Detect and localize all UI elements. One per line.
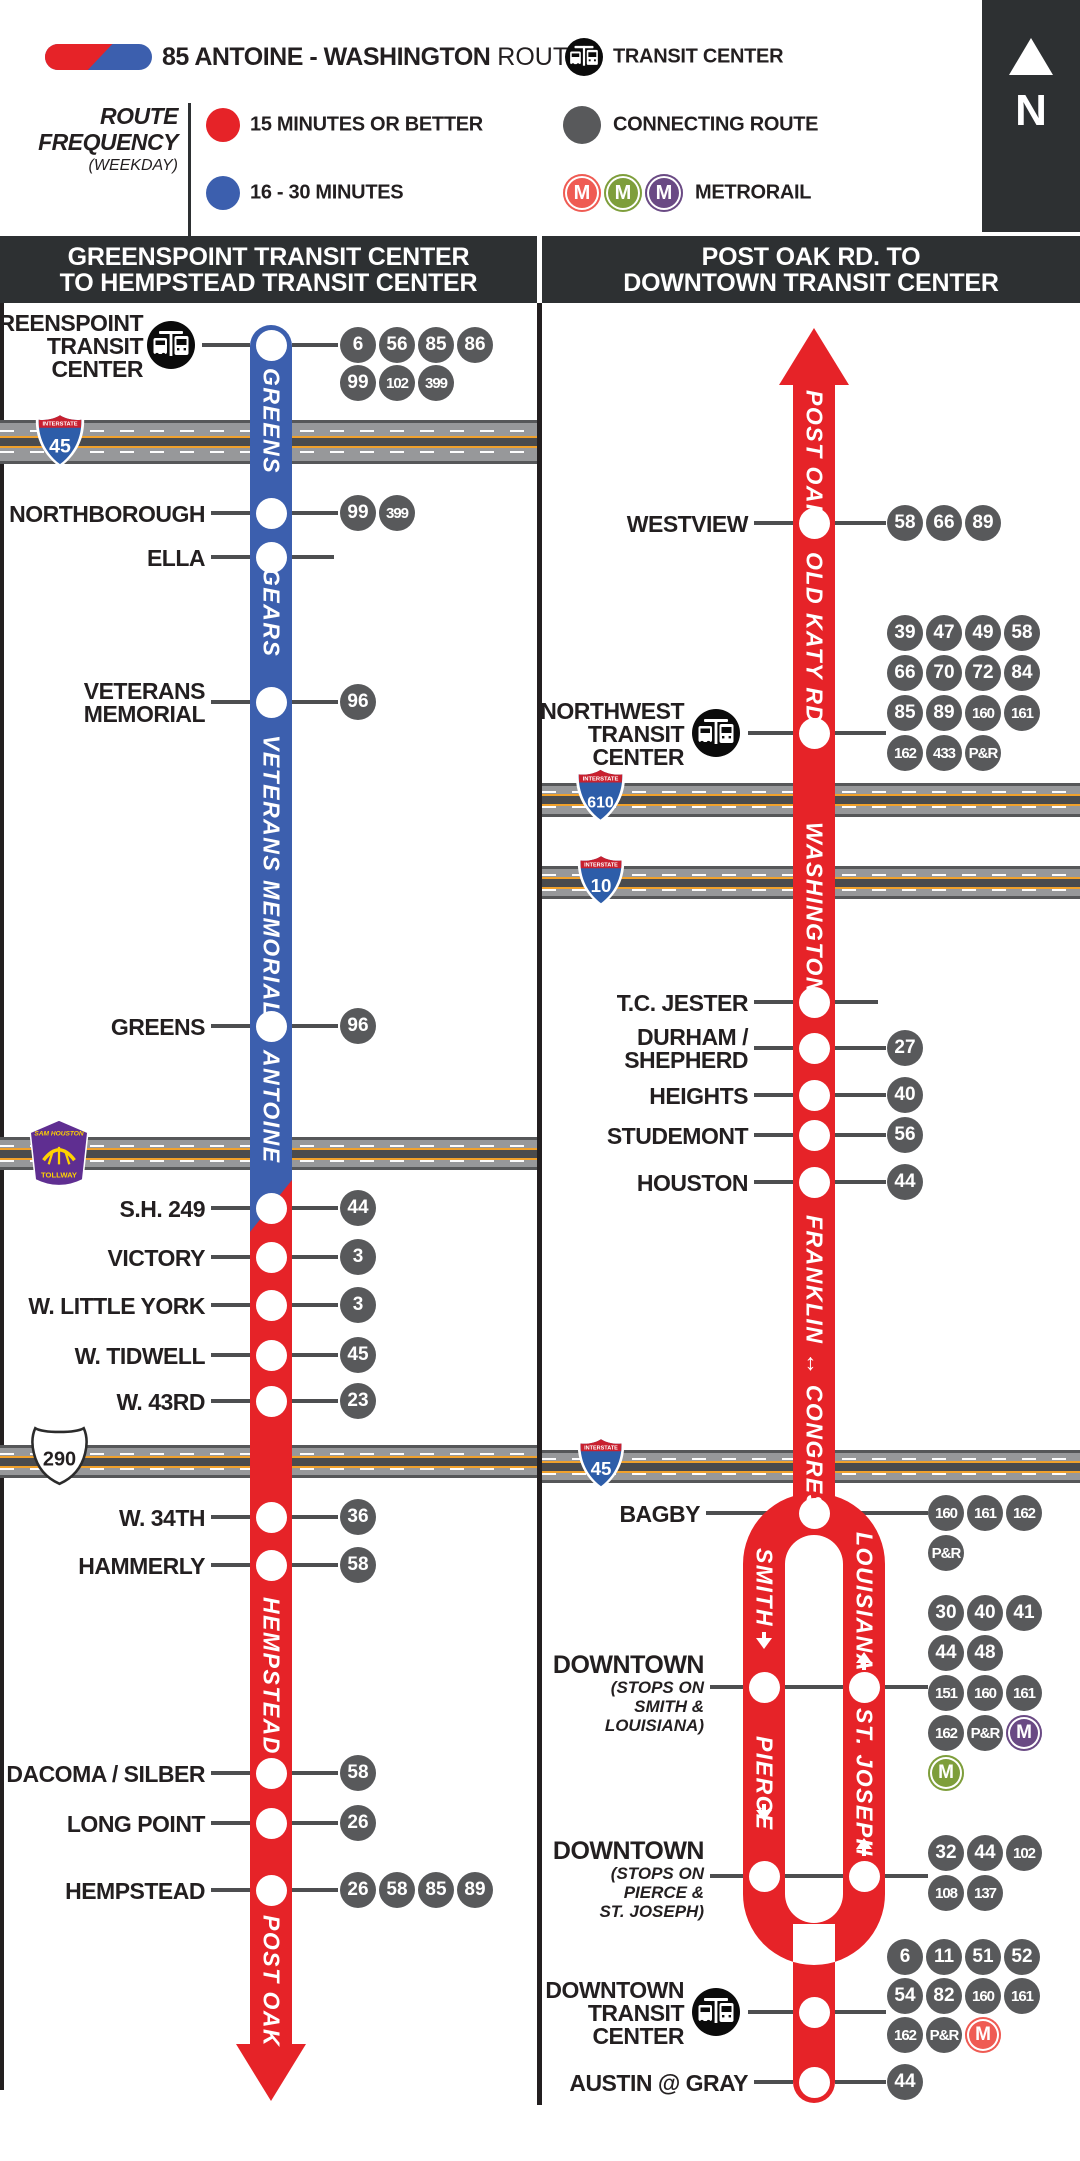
route-badge: 433	[926, 735, 962, 771]
stop-label-line: TRANSIT	[424, 723, 684, 746]
metrorail-badge: M	[965, 2017, 1001, 2053]
stop-label-line: SHEPHERD	[488, 1049, 748, 1072]
stop-label: VICTORY	[0, 1247, 205, 1270]
route-badge: 399	[379, 495, 415, 531]
connector-line	[292, 1399, 338, 1403]
connector-line	[211, 555, 250, 559]
connector-line	[292, 1821, 338, 1825]
stop-label-line: TRANSIT	[424, 2002, 684, 2025]
highway-shield: INTERSTATE 45	[576, 1433, 626, 1493]
route-badge: 137	[967, 1875, 1003, 1911]
street-label: ST. JOSEPH	[843, 1708, 885, 1830]
route-badge: 6	[340, 327, 376, 363]
route-badge: 58	[1004, 615, 1040, 651]
route-badge: 44	[967, 1835, 1003, 1871]
stop-label-line: CENTER	[0, 358, 143, 381]
stop-marker	[799, 1033, 830, 1064]
connector-line	[748, 731, 793, 735]
stop-sub-label: LOUISIANA)	[444, 1716, 704, 1735]
stop-label: AUSTIN @ GRAY	[488, 2072, 748, 2095]
route-badge: 162	[887, 735, 923, 771]
stop-label-line: VICTORY	[0, 1247, 205, 1270]
route-badge: 85	[887, 695, 923, 731]
route-badge: 108	[928, 1875, 964, 1911]
connector-line	[211, 1399, 250, 1403]
svg-text:45: 45	[591, 1458, 612, 1479]
route-badge: 161	[967, 1495, 1003, 1531]
stop-label-line: W. LITTLE YORK	[0, 1295, 205, 1318]
stop-label-line: WESTVIEW	[488, 513, 748, 536]
transit-center-bus-glyph	[692, 709, 740, 757]
stop-label-line: TRANSIT	[0, 335, 143, 358]
stop-label-line: GREENSPOINT	[0, 312, 143, 335]
route-badge: 102	[1006, 1835, 1042, 1871]
route-badge: 3	[340, 1239, 376, 1275]
stop-label: WESTVIEW	[488, 513, 748, 536]
highway-shield: INTERSTATE 10	[576, 850, 626, 910]
route-badge: 58	[379, 1872, 415, 1908]
svg-text:SAM HOUSTON: SAM HOUSTON	[34, 1130, 83, 1137]
map-layer: INTERSTATE 45 SAM HOUSTON TOLLWAY 290GRE…	[0, 0, 1080, 2161]
street-label: POST OAK	[793, 390, 835, 505]
stop-label-line: CENTER	[424, 2025, 684, 2048]
route-badge: 161	[1004, 695, 1040, 731]
route-badge: 26	[340, 1805, 376, 1841]
stop-marker	[799, 508, 830, 539]
route-badge: 99	[340, 365, 376, 401]
stop-marker	[799, 1997, 830, 2028]
stop-marker	[256, 1340, 287, 1371]
direction-arrow-stem	[862, 1663, 866, 1670]
stop-marker	[256, 1011, 287, 1042]
route-badge: 44	[887, 1164, 923, 1200]
route-badge: 27	[887, 1030, 923, 1066]
route-badge: 40	[967, 1595, 1003, 1631]
stop-label: DOWNTOWN(STOPS ONPIERCE &ST. JOSEPH)	[444, 1838, 704, 1921]
direction-arrow-down	[756, 1638, 772, 1649]
route-badge: 151	[928, 1675, 964, 1711]
stop-label: HEMPSTEAD	[0, 1880, 205, 1903]
route-badge: 48	[967, 1635, 1003, 1671]
stop-label-line: HEMPSTEAD	[0, 1880, 205, 1903]
connector-line	[754, 521, 793, 525]
svg-text:610: 610	[587, 795, 614, 812]
metrorail-badge: M	[928, 1755, 964, 1791]
stop-label: T.C. JESTER	[488, 992, 748, 1015]
stop-marker	[799, 1080, 830, 1111]
connector-line	[835, 1000, 878, 1004]
route-badge: 96	[340, 684, 376, 720]
park-and-ride-badge: P&R	[928, 1535, 964, 1571]
stop-label: ELLA	[0, 547, 205, 570]
transit-center-icon	[147, 321, 195, 369]
stop-label-line: BAGBY	[440, 1503, 700, 1526]
street-label: WASHINGTON	[793, 822, 835, 992]
stop-label: VETERANSMEMORIAL	[0, 680, 205, 726]
stop-label-line: T.C. JESTER	[488, 992, 748, 1015]
connector-line	[835, 2080, 886, 2084]
route-badge: 162	[928, 1715, 964, 1751]
stop-sub-label: PIERCE &	[444, 1883, 704, 1902]
stop-label: DURHAM /SHEPHERD	[488, 1026, 748, 1072]
route-badge: 3	[340, 1287, 376, 1323]
stop-marker	[799, 2067, 830, 2098]
route-badge: 52	[1004, 1939, 1040, 1975]
street-label: ANTOINE	[250, 1050, 292, 1175]
route-badge: 89	[965, 505, 1001, 541]
interstate-shield-45: INTERSTATE 45	[576, 1433, 626, 1493]
connector-line	[292, 1024, 338, 1028]
route-badge: 58	[887, 505, 923, 541]
connector-line	[292, 343, 338, 347]
route-arrow-up	[779, 328, 849, 385]
stop-label: HAMMERLY	[0, 1555, 205, 1578]
connector-line	[754, 1180, 793, 1184]
stop-label: HOUSTON	[488, 1172, 748, 1195]
route-badge: 70	[926, 655, 962, 691]
route-badge: 44	[340, 1190, 376, 1226]
connector-line	[211, 1024, 250, 1028]
connector-line	[754, 2080, 793, 2084]
stop-marker	[256, 687, 287, 718]
route-badge: 6	[887, 1939, 923, 1975]
stop-marker	[749, 1672, 780, 1703]
connector-line	[835, 1093, 886, 1097]
route-badge: 23	[340, 1383, 376, 1419]
stop-sub-label: SMITH &	[444, 1697, 704, 1716]
park-and-ride-badge: P&R	[926, 2017, 962, 2053]
route-badge: 36	[340, 1499, 376, 1535]
connector-line	[748, 2010, 793, 2014]
stop-label-line: MEMORIAL	[0, 703, 205, 726]
stop-sub-label: ST. JOSEPH)	[444, 1902, 704, 1921]
stop-label: S.H. 249	[0, 1198, 205, 1221]
route-badge: 47	[926, 615, 962, 651]
connector-line	[754, 1093, 793, 1097]
connector-line	[754, 1000, 793, 1004]
svg-text:TOLLWAY: TOLLWAY	[41, 1171, 77, 1180]
route-badge: 49	[965, 615, 1001, 651]
stop-sub-label: (STOPS ON	[444, 1864, 704, 1883]
highway-shield: INTERSTATE 610	[574, 764, 627, 826]
route-badge: 86	[457, 327, 493, 363]
route-badge: 11	[926, 1939, 962, 1975]
interstate-shield-45: INTERSTATE 45	[34, 410, 86, 470]
stop-label-line: S.H. 249	[0, 1198, 205, 1221]
route-badge: 40	[887, 1077, 923, 1113]
route-badge: 96	[340, 1008, 376, 1044]
route-badge: 30	[928, 1595, 964, 1631]
stop-marker	[799, 718, 830, 749]
svg-text:INTERSTATE: INTERSTATE	[583, 776, 619, 782]
route-badge: 44	[887, 2064, 923, 2100]
svg-text:INTERSTATE: INTERSTATE	[584, 862, 618, 868]
route-badge: 45	[340, 1337, 376, 1373]
stop-label-line: VETERANS	[0, 680, 205, 703]
route-badge: 32	[928, 1835, 964, 1871]
stop-label-line: HEIGHTS	[488, 1085, 748, 1108]
route-badge: 58	[340, 1547, 376, 1583]
park-and-ride-badge: P&R	[967, 1715, 1003, 1751]
stop-label: DOWNTOWNTRANSITCENTER	[424, 1979, 684, 2048]
connector-line	[211, 1821, 250, 1825]
stop-label: STUDEMONT	[488, 1125, 748, 1148]
direction-arrow-stem	[862, 1849, 866, 1856]
connector-line	[710, 1685, 928, 1689]
stop-label-line: DOWNTOWN	[444, 1652, 704, 1678]
stop-marker	[256, 1808, 287, 1839]
interstate-shield-610: INTERSTATE 610	[574, 764, 627, 826]
stop-label-line: DURHAM /	[488, 1026, 748, 1049]
stop-marker	[849, 1672, 880, 1703]
interstate-shield-10: INTERSTATE 10	[576, 850, 626, 910]
transit-center-icon	[692, 1988, 740, 2036]
stop-label: W. LITTLE YORK	[0, 1295, 205, 1318]
transit-center-bus-glyph	[692, 1988, 740, 2036]
svg-text:INTERSTATE: INTERSTATE	[42, 422, 77, 428]
route-badge: 399	[418, 365, 454, 401]
stop-marker	[799, 1498, 830, 1529]
route-badge: 72	[965, 655, 1001, 691]
svg-text:INTERSTATE: INTERSTATE	[584, 1445, 618, 1451]
stop-label: GREENSPOINTTRANSITCENTER	[0, 312, 143, 381]
stop-marker	[256, 1758, 287, 1789]
route-badge: 84	[1004, 655, 1040, 691]
stop-label-line: W. TIDWELL	[0, 1345, 205, 1368]
stop-label: NORTHWESTTRANSITCENTER	[424, 700, 684, 769]
stop-label: DACOMA / SILBER	[0, 1763, 205, 1786]
street-label: LOUISIANA	[843, 1532, 885, 1642]
connector-line	[710, 1874, 928, 1878]
connector-line	[754, 1133, 793, 1137]
connector-line	[211, 1515, 250, 1519]
connector-line	[211, 700, 250, 704]
route-badge: 51	[965, 1939, 1001, 1975]
stop-marker	[749, 1861, 780, 1892]
stop-sub-label: (STOPS ON	[444, 1678, 704, 1697]
direction-arrow-up	[856, 1838, 872, 1849]
route-badge: 99	[340, 495, 376, 531]
stop-marker	[256, 1875, 287, 1906]
stop-label: W. TIDWELL	[0, 1345, 205, 1368]
stop-marker	[256, 1290, 287, 1321]
route-badge: 82	[926, 1978, 962, 2014]
connector-line	[211, 1255, 250, 1259]
connector-line	[835, 1180, 886, 1184]
route-badge: 41	[1006, 1595, 1042, 1631]
connector-line	[211, 511, 250, 515]
us-route-shield-290: 290	[31, 1426, 88, 1486]
connector-line	[292, 1515, 338, 1519]
stop-label: NORTHBOROUGH	[0, 503, 205, 526]
connector-line	[292, 1303, 338, 1307]
highway-shield: 290	[31, 1426, 88, 1486]
svg-text:290: 290	[43, 1448, 76, 1470]
stop-marker	[256, 498, 287, 529]
route-badge: 89	[926, 695, 962, 731]
stop-label-line: DACOMA / SILBER	[0, 1763, 205, 1786]
svg-text:10: 10	[591, 875, 612, 896]
street-label: POST OAK	[250, 1915, 292, 2037]
route-badge: 26	[340, 1872, 376, 1908]
stop-marker	[799, 1120, 830, 1151]
route-badge: 56	[379, 327, 415, 363]
stop-label-line: NORTHBOROUGH	[0, 503, 205, 526]
connector-line	[754, 1046, 793, 1050]
connector-line	[292, 1563, 338, 1567]
street-label: GEARS	[250, 568, 292, 693]
stop-label-line: AUSTIN @ GRAY	[488, 2072, 748, 2095]
direction-arrow-up	[856, 1652, 872, 1663]
svg-text:45: 45	[49, 435, 71, 457]
connector-line	[211, 1353, 250, 1357]
connector-line	[211, 1206, 250, 1210]
connector-line	[835, 1133, 886, 1137]
stop-label-line: W. 43RD	[0, 1391, 205, 1414]
route-badge: 162	[887, 2017, 923, 2053]
stop-label-line: GREENS	[0, 1016, 205, 1039]
connector-line	[292, 1771, 338, 1775]
stop-label-line: DOWNTOWN	[444, 1838, 704, 1864]
route-arrow-down	[236, 2044, 306, 2101]
connector-line	[292, 1206, 338, 1210]
route-map: 85 ANTOINE - WASHINGTON ROUTE ROUTE FREQ…	[0, 0, 1080, 2161]
stop-label-line: HOUSTON	[488, 1172, 748, 1195]
connector-line	[202, 343, 250, 347]
connector-line	[211, 1563, 250, 1567]
connector-line	[211, 1888, 250, 1892]
stop-marker	[256, 1193, 287, 1224]
stop-label: W. 43RD	[0, 1391, 205, 1414]
connector-line	[211, 1303, 250, 1307]
connector-line	[211, 1771, 250, 1775]
connector-line	[292, 555, 334, 559]
stop-marker	[256, 542, 287, 573]
route-badge: 160	[965, 1978, 1001, 2014]
sam-houston-tollway-shield: SAM HOUSTON TOLLWAY	[28, 1119, 90, 1187]
route-badge: 39	[887, 615, 923, 651]
route-badge: 85	[418, 327, 454, 363]
stop-label: W. 34TH	[0, 1507, 205, 1530]
route-badge: 162	[1006, 1495, 1042, 1531]
stop-label-line: NORTHWEST	[424, 700, 684, 723]
stop-label: GREENS	[0, 1016, 205, 1039]
metrorail-badge: M	[1006, 1715, 1042, 1751]
stop-marker	[256, 1550, 287, 1581]
highway-shield: SAM HOUSTON TOLLWAY	[28, 1119, 90, 1187]
stop-label-line: ELLA	[0, 547, 205, 570]
direction-arrow-down	[756, 1810, 772, 1821]
connector-line	[835, 2010, 886, 2014]
stop-label-line: CENTER	[424, 746, 684, 769]
connector-line	[835, 521, 886, 525]
street-label: VETERANS MEMORIAL	[250, 735, 292, 1005]
transit-center-icon	[692, 709, 740, 757]
route-badge: 54	[887, 1978, 923, 2014]
connector-line	[292, 1888, 338, 1892]
transit-center-bus-glyph	[147, 321, 195, 369]
connector-line	[292, 700, 338, 704]
highway-shield: INTERSTATE 45	[34, 410, 86, 470]
street-label: HEMPSTEAD	[250, 1597, 292, 1747]
park-and-ride-badge: P&R	[965, 735, 1001, 771]
street-label: SMITH	[743, 1548, 785, 1633]
stop-label-line: W. 34TH	[0, 1507, 205, 1530]
route-badge: 58	[340, 1755, 376, 1791]
connector-line	[292, 1255, 338, 1259]
stop-marker	[256, 1386, 287, 1417]
route-badge: 160	[965, 695, 1001, 731]
connector-line	[292, 1353, 338, 1357]
stop-marker	[256, 330, 287, 361]
stop-label: LONG POINT	[0, 1813, 205, 1836]
street-label: PIERCE	[743, 1736, 785, 1804]
stop-marker	[799, 1167, 830, 1198]
stop-label-line: DOWNTOWN	[424, 1979, 684, 2002]
stop-marker	[256, 1242, 287, 1273]
route-badge: 161	[1006, 1675, 1042, 1711]
stop-marker	[799, 987, 830, 1018]
stop-label-line: HAMMERLY	[0, 1555, 205, 1578]
connector-line	[835, 1046, 886, 1050]
route-badge: 66	[926, 505, 962, 541]
stop-marker	[256, 1502, 287, 1533]
connector-line	[292, 511, 338, 515]
street-label: FRANKLIN ↔ CONGRESS	[793, 1215, 835, 1495]
route-badge: 56	[887, 1117, 923, 1153]
route-badge: 161	[1004, 1978, 1040, 2014]
stop-label: DOWNTOWN(STOPS ONSMITH &LOUISIANA)	[444, 1652, 704, 1735]
stop-label: BAGBY	[440, 1503, 700, 1526]
route-badge: 44	[928, 1635, 964, 1671]
street-label: GREENS	[250, 368, 292, 518]
stop-label-line: STUDEMONT	[488, 1125, 748, 1148]
stop-marker	[849, 1861, 880, 1892]
route-badge: 160	[928, 1495, 964, 1531]
street-label: OLD KATY RD.	[793, 552, 835, 707]
route-badge: 66	[887, 655, 923, 691]
connector-line	[835, 731, 886, 735]
stop-label-line: LONG POINT	[0, 1813, 205, 1836]
stop-label: HEIGHTS	[488, 1085, 748, 1108]
route-badge: 160	[967, 1675, 1003, 1711]
route-badge: 102	[379, 365, 415, 401]
